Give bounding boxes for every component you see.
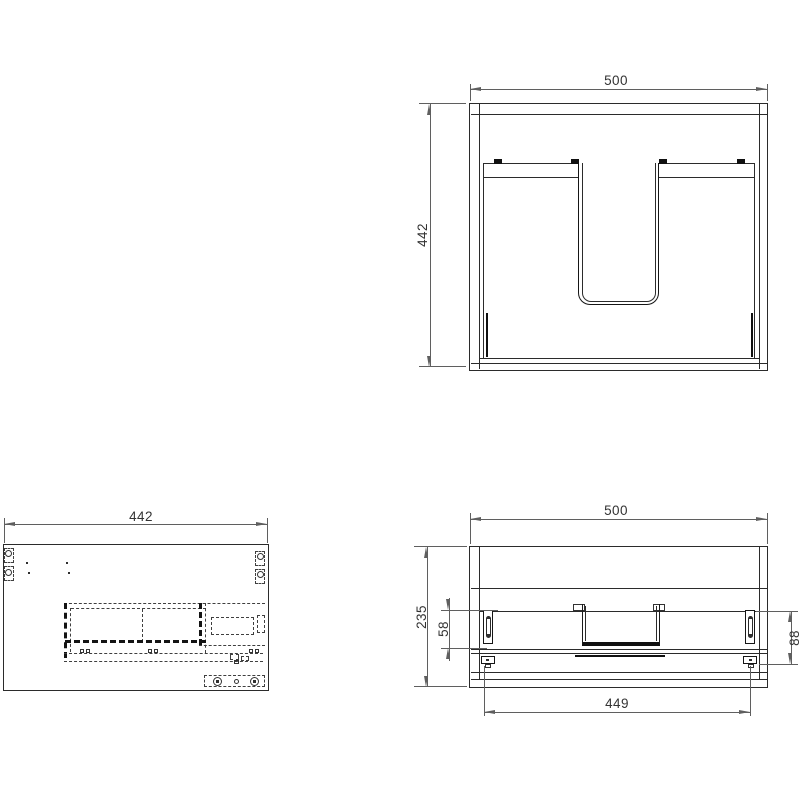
- drawer-front-inner: [70, 608, 71, 652]
- tv-right-dark-edge: [751, 313, 753, 357]
- dim-line-500-top: [470, 89, 767, 90]
- dim-arrow: [427, 356, 431, 367]
- slide-link-line: [199, 645, 265, 646]
- dim-arrow: [739, 710, 750, 714]
- slide-clip-foot: [234, 660, 239, 664]
- bracket-screw: [487, 634, 490, 637]
- fv-bottom-line-1: [471, 672, 767, 673]
- screw-mark: [26, 562, 28, 564]
- rail-roller: [255, 649, 259, 653]
- fixing-pin: [216, 680, 219, 683]
- rail-clip: [737, 159, 745, 164]
- tv-left-panel-line: [479, 104, 480, 369]
- dim-arrow: [756, 87, 767, 91]
- slide-clip: [241, 656, 249, 661]
- bracket-foot-notch: [748, 664, 754, 668]
- ext-line: [484, 666, 485, 716]
- dim-arrow: [470, 87, 481, 91]
- rail-roller: [80, 649, 84, 653]
- ext-line: [759, 664, 798, 665]
- drawer-rail-heavy: [65, 640, 206, 643]
- dim-line-442-side: [4, 524, 267, 525]
- rail-roller: [148, 649, 152, 653]
- bracket-screw: [487, 617, 490, 620]
- bracket-screw: [749, 617, 752, 620]
- tv-back-rail-line: [471, 114, 767, 115]
- dim-label-front-height: 235: [415, 592, 429, 642]
- bracket-cam-icon: [257, 553, 264, 560]
- slide-bracket-rear: [211, 617, 254, 635]
- rail-roller: [154, 649, 158, 653]
- ext-line: [414, 546, 467, 547]
- screw-mark: [68, 572, 70, 574]
- siphon-wall-inner: [656, 606, 657, 641]
- screw-mark: [28, 572, 30, 574]
- drawer-divider: [142, 609, 143, 643]
- tv-bottom-lip-line: [471, 363, 767, 364]
- rail-clip: [571, 159, 579, 164]
- drawing-canvas: 500 442 442: [0, 0, 800, 800]
- fv-left-panel-line: [479, 547, 480, 679]
- rail-roller: [86, 649, 90, 653]
- slide-wall-mount: [257, 615, 265, 633]
- dim-label-inner-width: 449: [592, 697, 642, 711]
- rail-roller: [249, 649, 253, 653]
- ext-line: [267, 518, 268, 543]
- fixing-hole-small: [234, 679, 239, 684]
- dim-arrow: [756, 517, 767, 521]
- dim-arrow: [256, 522, 267, 526]
- siphon-wall-inner: [585, 606, 586, 641]
- fv-bottom-line-2: [471, 679, 767, 680]
- bracket-screw: [749, 634, 752, 637]
- tv-backpanel-left-edge: [483, 163, 484, 358]
- tv-left-dark-edge: [486, 313, 488, 357]
- tv-rail-bottom-right: [658, 177, 754, 178]
- dim-label-bracket-right: 88: [788, 613, 800, 663]
- bracket-cam-icon: [5, 550, 12, 557]
- fv-center-strip: [575, 655, 665, 658]
- tv-right-panel-line: [759, 104, 760, 369]
- drawer-front-edge: [64, 603, 67, 659]
- dim-arrow: [427, 104, 431, 115]
- dim-arrow: [424, 547, 428, 558]
- rail-clip: [659, 159, 667, 164]
- fv-shelf-line: [471, 649, 767, 650]
- dim-label-bracket-left: 58: [437, 604, 451, 654]
- u-cutout-inner: [582, 163, 656, 302]
- bracket-cam-icon: [5, 569, 12, 576]
- dim-arrow: [470, 517, 481, 521]
- dim-label-top-depth: 442: [416, 210, 430, 260]
- bracket-cam-icon: [257, 571, 264, 578]
- rail-clip: [494, 159, 502, 164]
- dim-line-449: [484, 712, 750, 713]
- screw-mark: [66, 562, 68, 564]
- ext-line: [414, 686, 467, 687]
- foot-screw: [749, 659, 752, 662]
- drawer-slide-top-inner: [71, 608, 206, 609]
- dim-arrow: [484, 710, 495, 714]
- dim-label-front-width: 500: [591, 504, 641, 518]
- siphon-recess-box: [582, 604, 661, 646]
- tv-backpanel-right-edge: [754, 163, 755, 358]
- dim-label-top-width: 500: [591, 74, 641, 88]
- tv-rail-bottom-left: [483, 177, 579, 178]
- foot-screw: [486, 659, 489, 662]
- dim-label-side-depth: 442: [116, 510, 166, 524]
- dim-arrow: [4, 522, 15, 526]
- bracket-foot-notch: [485, 664, 491, 668]
- fv-shelf-line-2: [471, 653, 767, 654]
- fixing-pin: [253, 680, 256, 683]
- dim-arrow: [424, 676, 428, 687]
- fv-top-band-line: [471, 588, 767, 589]
- fv-right-panel-line: [759, 547, 760, 679]
- drawer-slide-top: [64, 603, 265, 604]
- tv-bottom-inner-line: [479, 358, 759, 359]
- dim-line-500-front: [470, 519, 767, 520]
- ext-line: [750, 666, 751, 716]
